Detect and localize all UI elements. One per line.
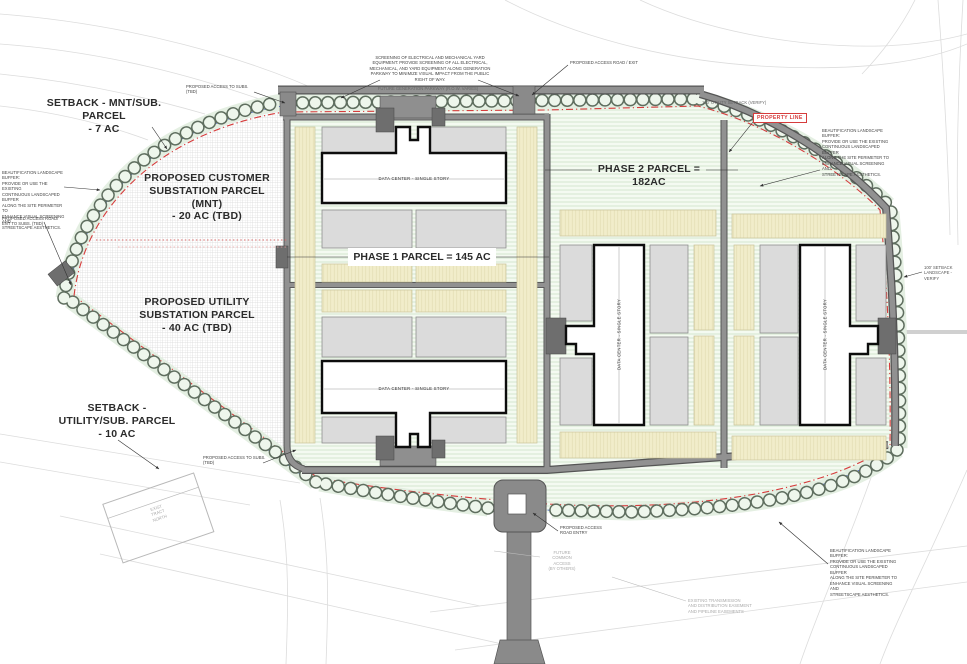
note-access-road-ent-to-subs: PROPOSED ACCESS ROAD/ ENT TO SUBS. (TBD) <box>2 216 64 227</box>
note-access-to-subs-north: PROPOSED ACCESS TO SUBS. (TBD) <box>186 84 256 95</box>
label-property-line: PROPERTY LINE <box>753 113 807 123</box>
note-future-common-access: FUTURE COMMON ACCESS (BY OTHERS) <box>540 550 584 572</box>
label-phase2-parcel: PHASE 2 PARCEL = 182AC <box>593 163 705 189</box>
label-customer-substation: PROPOSED CUSTOMER SUBSTATION PARCEL (MNT… <box>133 172 281 223</box>
note-screening: SCREENING OF ELECTRICAL AND MECHANICAL Y… <box>358 55 502 82</box>
label-data-center-1: DATA CENTER - SINGLE STORY <box>324 176 504 181</box>
note-future-generation-parkway: FUTURE GENERATION PARKWAY (R.O.W. VARIES… <box>366 86 490 91</box>
note-setback-landscape-100: 100' SETBACK LANDSCAPE - VERIFY <box>924 265 966 281</box>
note-beautification-buffer-south: BEAUTIFICATION LANDSCAPE BUFFER: PROVIDE… <box>830 548 900 597</box>
site-entry <box>494 480 546 664</box>
label-data-center-3: DATA CENTER - SINGLE STORY <box>617 255 622 415</box>
note-utility-setback-100: 100' UTILITY SETBACK (VERIFY) <box>702 100 787 105</box>
label-setback-mnt-sub: SETBACK - MNT/SUB. PARCEL - 7 AC <box>38 97 170 135</box>
note-access-road-entry: PROPOSED ACCESS ROAD ENTRY <box>560 525 616 536</box>
note-existing-easement: EXISTING TRANSMISSION AND DISTRIBUTION E… <box>688 598 772 614</box>
label-phase1-parcel: PHASE 1 PARCEL = 145 AC <box>348 248 496 266</box>
label-data-center-2: DATA CENTER - SINGLE STORY <box>324 386 504 391</box>
note-access-to-subs-south: PROPOSED ACCESS TO SUBS. (TBD) <box>203 455 269 466</box>
label-utility-substation: PROPOSED UTILITY SUBSTATION PARCEL - 40 … <box>123 296 271 334</box>
label-setback-utility-sub: SETBACK - UTILITY/SUB. PARCEL - 10 AC <box>52 402 182 440</box>
note-access-road-exit: PROPOSED ACCESS ROAD / EXIT <box>570 60 648 65</box>
site-plan-drawing: SETBACK - MNT/SUB. PARCEL - 7 AC PROPOSE… <box>0 0 967 664</box>
note-beautification-buffer-east: BEAUTIFICATION LANDSCAPE BUFFER: PROVIDE… <box>822 128 892 177</box>
label-data-center-4: DATA CENTER - SINGLE STORY <box>823 255 828 415</box>
